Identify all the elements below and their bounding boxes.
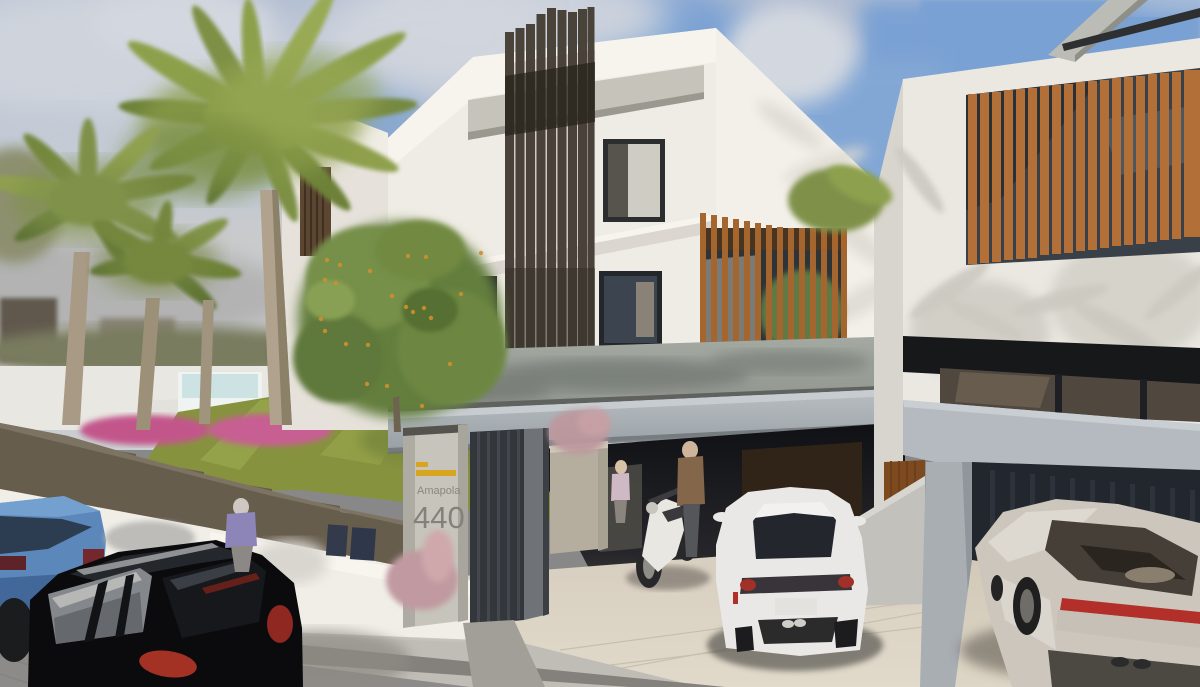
svg-text:440: 440 (413, 500, 465, 535)
svg-text:Amapola: Amapola (417, 485, 461, 497)
